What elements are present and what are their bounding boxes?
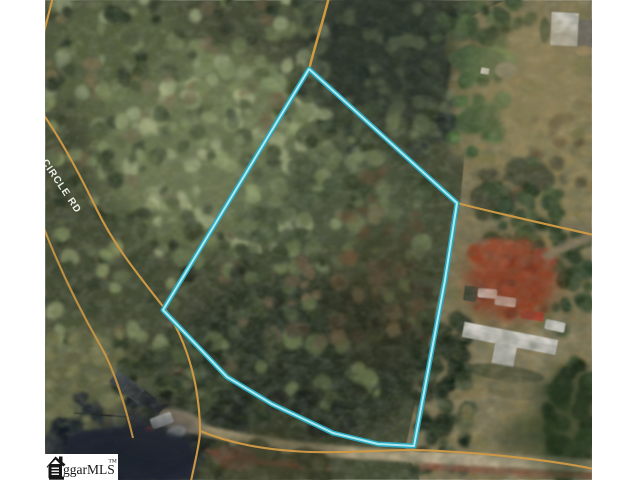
svg-text:TM: TM — [109, 459, 117, 465]
svg-text:ggarMLS: ggarMLS — [63, 462, 115, 477]
